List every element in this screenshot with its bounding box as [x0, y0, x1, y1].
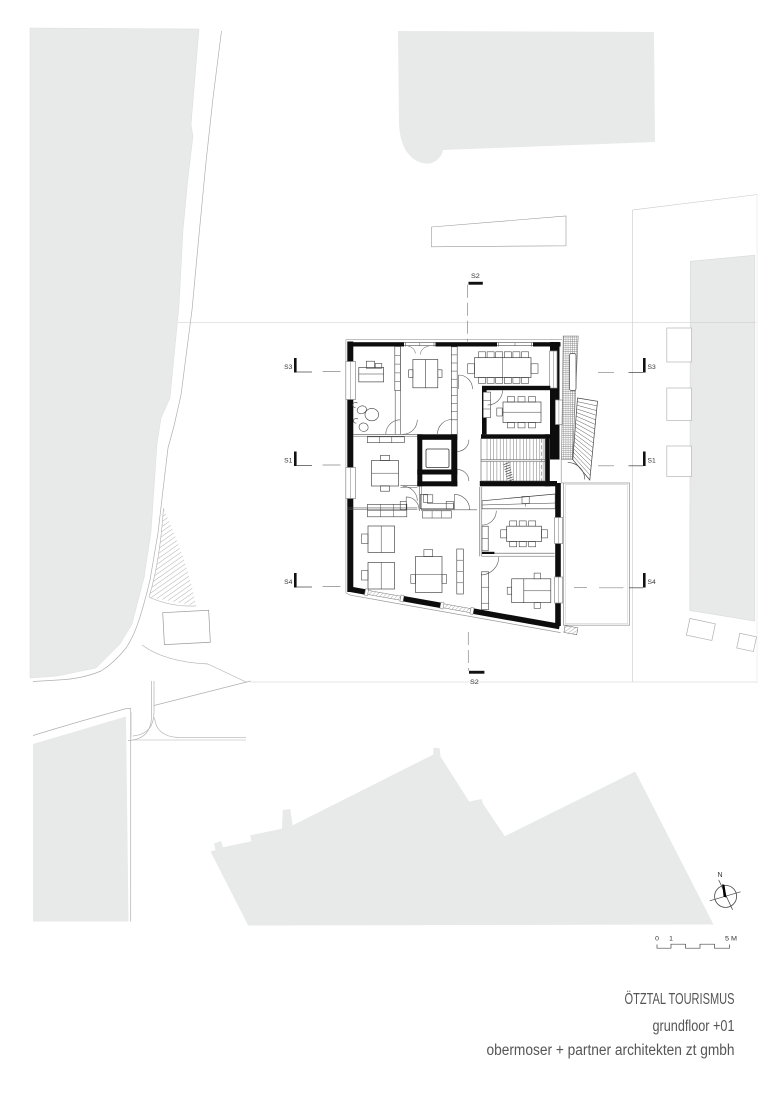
- svg-text:S4: S4: [284, 579, 293, 586]
- svg-text:grundfloor +01: grundfloor +01: [653, 1018, 735, 1035]
- svg-text:S3: S3: [648, 364, 657, 371]
- svg-text:S4: S4: [648, 579, 657, 586]
- svg-text:S2: S2: [470, 679, 479, 686]
- svg-text:ÖTZTAL TOURISMUS: ÖTZTAL TOURISMUS: [625, 990, 735, 1008]
- svg-text:S1: S1: [648, 458, 657, 465]
- svg-text:N: N: [717, 872, 722, 879]
- svg-text:S1: S1: [284, 458, 293, 465]
- svg-text:S2: S2: [471, 273, 480, 280]
- svg-text:1: 1: [669, 936, 673, 943]
- svg-text:obermoser + partner architekte: obermoser + partner architekten zt gmbh: [487, 1042, 735, 1059]
- svg-text:S3: S3: [284, 364, 293, 371]
- svg-text:0: 0: [655, 936, 659, 943]
- svg-text:5 M: 5 M: [725, 936, 737, 943]
